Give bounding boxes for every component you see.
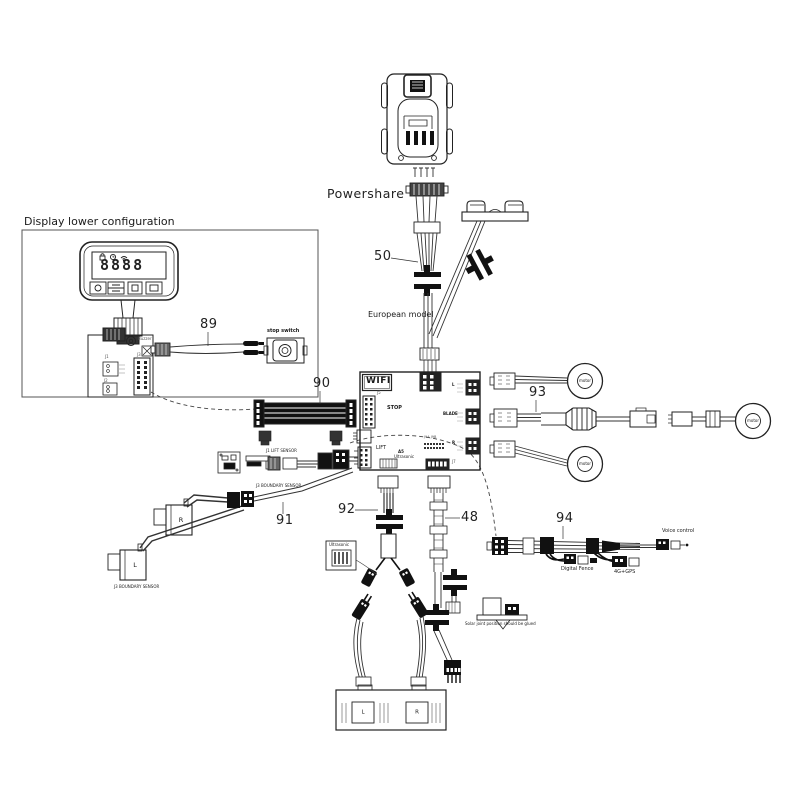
voice-control-label: Voice control [662, 529, 694, 534]
part-50-label: 50 [374, 250, 392, 263]
main-board [353, 372, 480, 470]
pcb-j2-label: J2 [104, 379, 108, 383]
boundary-sensor-top-label: J3 BOUNDARY SENSOR [256, 484, 301, 488]
wifi-logo: WIFI [366, 377, 391, 386]
lift-sensor-label: J1 LIFT SENSOR [266, 449, 297, 453]
sensor-pcb-part [218, 452, 240, 473]
board-blade-label: BLADE [443, 412, 458, 416]
board-stop-label: STOP [387, 406, 402, 411]
lift-sensor-harness [268, 450, 358, 470]
part-48-label: 48 [461, 511, 479, 524]
pcb-buzzer-label: Buzzer [138, 337, 152, 341]
part-91-label: 91 [276, 514, 294, 527]
boundary-l-label: L [133, 562, 137, 569]
motor-cables-93 [490, 364, 771, 482]
wiring-diagram: Powershare Display lower configuration 8… [0, 0, 800, 800]
part-94-label: 94 [556, 512, 574, 525]
solar-note-label: Solar joint position should be glued [465, 622, 536, 626]
harness-94 [487, 537, 688, 567]
boundary-r-label: R [179, 517, 184, 524]
display-config-box [22, 230, 318, 397]
motor-3-label: motor [747, 419, 759, 423]
board-r-label: R [452, 441, 455, 445]
board-j5-label: J5 [377, 391, 381, 395]
charging-dock [462, 201, 528, 221]
part-92-label: 92 [338, 503, 356, 516]
board-l-label: L [452, 383, 455, 387]
stop-switch-label: stop switch [267, 329, 299, 334]
display-config-title: Display lower configuration [24, 216, 175, 227]
boundary-sensor-bottom-label: J3 BOUNDARY SENSOR [114, 585, 159, 589]
battery-cable-50 [406, 168, 448, 372]
bracket-part [246, 456, 271, 469]
battery [382, 74, 453, 164]
pcb-j1-label: J1 [105, 355, 109, 359]
ribbon-cable-90 [254, 400, 356, 445]
part-90-label: 90 [313, 377, 331, 390]
european-model-label: European model [368, 311, 434, 319]
powershare-label: Powershare [327, 188, 404, 201]
board-ultrasonic-label: Ultrasonic [394, 455, 414, 459]
board-j9-label: J9A J9B [424, 436, 436, 440]
leader-lines [208, 258, 563, 539]
display-digits: 8888 [100, 258, 144, 273]
diagram-linework [0, 0, 800, 800]
boundary-harness-91 [108, 468, 353, 580]
cable-89 [151, 338, 307, 363]
dock-harness [429, 221, 499, 338]
motor-2-label: motor [579, 462, 591, 466]
board-lift-label: LIFT [376, 446, 386, 451]
bottom-cables [351, 590, 429, 686]
ultrasonic-box-label: Ultrasonic [329, 543, 349, 547]
part-93-label: 93 [529, 386, 547, 399]
digital-fence-label: Digital Fence [561, 567, 593, 572]
part-89-label: 89 [200, 318, 218, 331]
bottom-block [336, 685, 446, 730]
pcb-j3-label: J3 [137, 353, 141, 357]
board-j7-label: J7 [452, 460, 456, 464]
motor-1-label: motor [579, 379, 591, 383]
block-l-label: L [361, 710, 364, 716]
block-r-label: R [415, 710, 419, 716]
board-bottom-connectors [378, 476, 450, 493]
gps-label: 4G+GPS [614, 570, 635, 575]
